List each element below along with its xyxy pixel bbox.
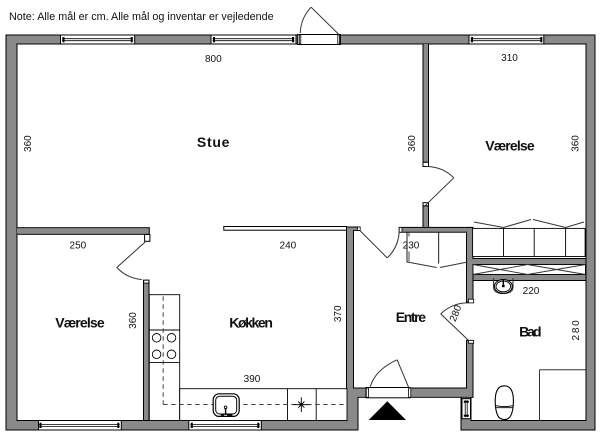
svg-text:Entre: Entre xyxy=(396,309,426,325)
svg-text:Stue: Stue xyxy=(197,134,230,150)
svg-text:390: 390 xyxy=(244,374,261,385)
svg-text:240: 240 xyxy=(280,241,297,252)
svg-text:Værelse: Værelse xyxy=(55,315,105,331)
svg-text:360: 360 xyxy=(571,135,582,152)
svg-text:Værelse: Værelse xyxy=(485,138,535,154)
svg-text:Bad: Bad xyxy=(519,323,541,339)
svg-text:220: 220 xyxy=(523,286,540,297)
svg-text:360: 360 xyxy=(128,312,139,329)
svg-text:310: 310 xyxy=(501,53,518,64)
svg-text:360: 360 xyxy=(23,135,34,152)
svg-text:230: 230 xyxy=(403,241,420,252)
svg-text:Køkken: Køkken xyxy=(229,314,272,330)
svg-text:250: 250 xyxy=(70,241,87,252)
svg-text:360: 360 xyxy=(407,135,418,152)
svg-text:370: 370 xyxy=(333,305,344,322)
svg-text:280: 280 xyxy=(571,318,582,340)
svg-text:800: 800 xyxy=(205,54,222,65)
svg-text:Note: Alle mål er cm. Alle mål: Note: Alle mål er cm. Alle mål og invent… xyxy=(9,11,274,23)
